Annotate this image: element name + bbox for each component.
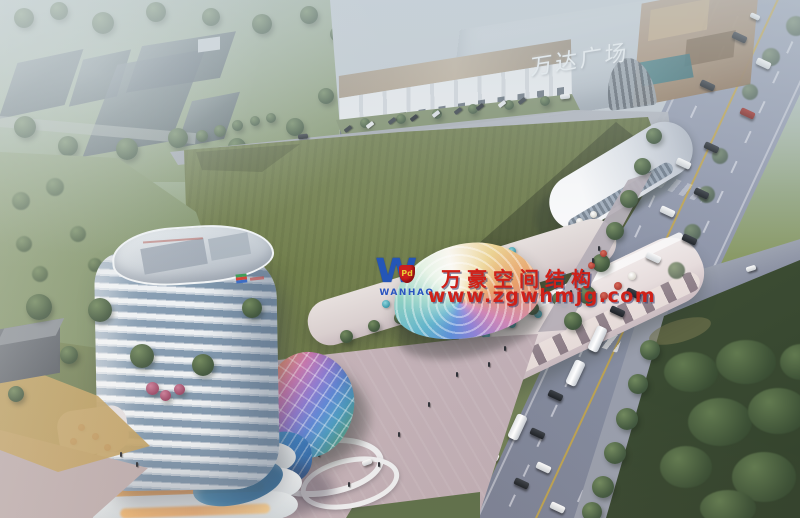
- aerial-rendering: 万达广场: [0, 0, 800, 518]
- watermark-website: www.zgwhmjg.com: [428, 285, 656, 307]
